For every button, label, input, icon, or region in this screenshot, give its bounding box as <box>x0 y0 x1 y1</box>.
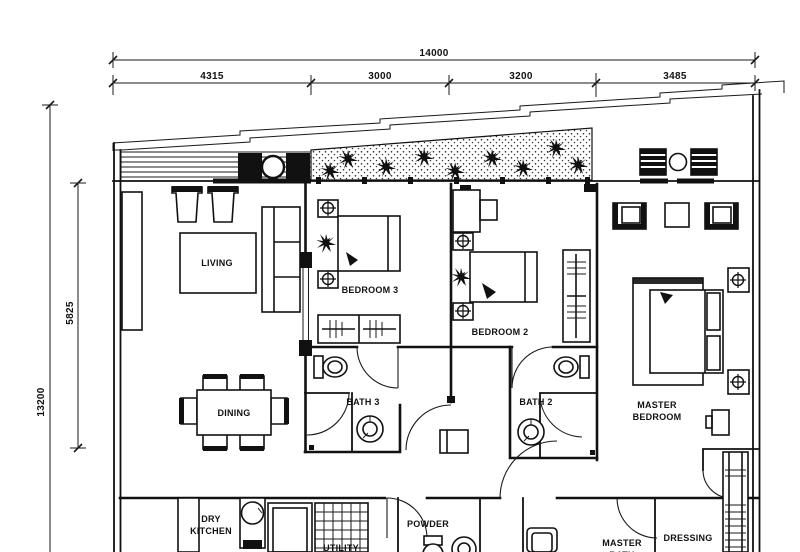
lounge-chair-icon <box>640 149 666 175</box>
label-dining: DINING <box>218 408 251 418</box>
room-bath2: BATH 2 <box>518 356 595 455</box>
label-master-bedroom-2: BEDROOM <box>633 412 682 422</box>
wardrobe-icon <box>318 315 400 343</box>
toilet-icon <box>423 536 443 552</box>
room-bedroom2: BEDROOM 2 <box>451 190 590 342</box>
plant-icon <box>451 267 471 287</box>
label-powder: POWDER <box>407 519 449 529</box>
dim-overall-width: 14000 <box>419 48 448 59</box>
armchair-icon <box>208 186 238 222</box>
armchair-icon <box>613 203 646 229</box>
label-bath3: BATH 3 <box>346 397 379 407</box>
label-bath2: BATH 2 <box>519 397 552 407</box>
tv-console-icon <box>238 153 310 181</box>
room-powder: POWDER <box>407 519 476 552</box>
dim-height-segment: 5825 <box>65 301 76 325</box>
kitchen-counter <box>178 498 199 552</box>
dim-seg-1: 4315 <box>200 71 224 82</box>
room-dining: DINING <box>179 374 289 451</box>
desk-icon <box>453 190 480 232</box>
dimension-top: 14000 4315 3000 3200 3485 <box>109 48 759 97</box>
kitchen-sink-icon <box>240 498 265 549</box>
basin-icon <box>452 537 476 552</box>
label-living: LIVING <box>201 258 233 268</box>
planter-box <box>311 128 592 182</box>
sofa-icon <box>262 207 300 312</box>
room-bath3: BATH 3 <box>309 356 383 450</box>
console-table-icon <box>440 430 468 453</box>
basin-icon <box>357 416 383 442</box>
label-utility: UTILITY <box>323 543 359 552</box>
armchair-icon <box>172 186 202 222</box>
kitchen-cabinet <box>268 503 312 552</box>
bed-icon <box>338 216 400 271</box>
side-table-icon <box>665 203 689 227</box>
dim-overall-height: 13200 <box>36 387 47 416</box>
terrace <box>640 149 717 175</box>
bed-icon <box>470 252 537 302</box>
armchair-icon <box>705 203 738 229</box>
dimension-left: 13200 5825 <box>36 101 86 552</box>
dim-seg-2: 3000 <box>368 71 392 82</box>
wardrobe-icon <box>563 250 590 342</box>
room-utility: UTILITY <box>315 503 368 552</box>
room-dressing: DRESSING <box>663 452 748 552</box>
toilet-icon <box>314 356 347 378</box>
basin-icon <box>518 419 544 445</box>
label-master-bath-1: MASTER <box>602 538 642 548</box>
room-master-bath: MASTER BATH <box>527 528 642 552</box>
dim-seg-3: 3200 <box>509 71 533 82</box>
room-dry-kitchen: DRY KITCHEN <box>178 498 312 552</box>
room-master-bedroom: MASTER BEDROOM <box>613 203 749 435</box>
terrace-table-icon <box>670 154 687 171</box>
side-cabinet <box>122 192 142 330</box>
dressing-wardrobe-icon <box>723 452 748 552</box>
room-bedroom3: BEDROOM 3 <box>316 200 400 343</box>
floor-plan-canvas: 14000 4315 3000 3200 3485 13200 5825 <box>0 0 800 552</box>
label-dry-kitchen-2: KITCHEN <box>190 526 232 536</box>
label-dressing: DRESSING <box>663 533 712 543</box>
plant-icon <box>316 233 336 253</box>
shower-icon <box>527 528 557 552</box>
desk-chair-icon <box>480 200 497 220</box>
label-master-bedroom-1: MASTER <box>637 400 677 410</box>
label-dry-kitchen-1: DRY <box>201 514 220 524</box>
dim-seg-4: 3485 <box>663 71 687 82</box>
label-bedroom2: BEDROOM 2 <box>472 327 529 337</box>
floor-plan-drawing: 14000 4315 3000 3200 3485 13200 5825 <box>0 0 800 552</box>
wall-fixture <box>706 410 729 435</box>
bed-icon <box>633 278 723 385</box>
toilet-icon <box>554 356 589 378</box>
lounge-chair-icon <box>691 149 717 175</box>
label-bedroom3: BEDROOM 3 <box>342 285 399 295</box>
